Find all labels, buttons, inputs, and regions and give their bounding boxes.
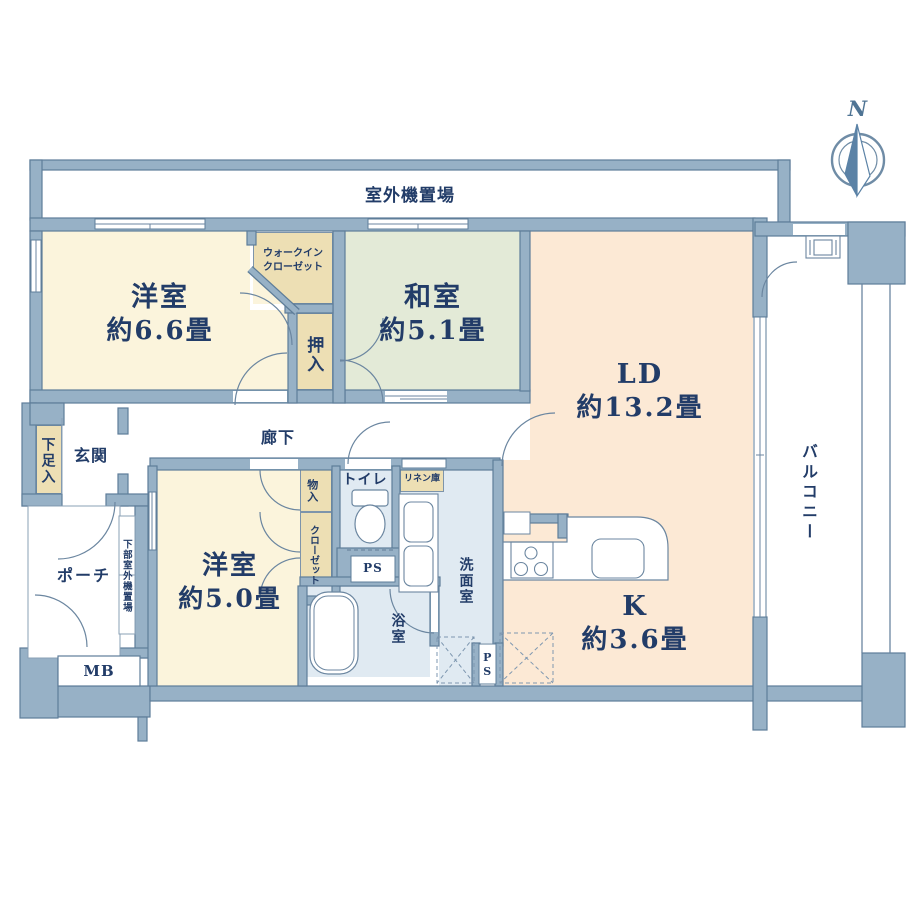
kitchen-label: K 約3.6畳 (555, 590, 715, 656)
pipe-space2-label: PS (480, 647, 494, 683)
kitchen-name: K (555, 590, 715, 624)
oshiire-label: 押入 (302, 318, 323, 392)
western2-name: 洋室 (140, 550, 320, 583)
toilet-label: トイレ (336, 472, 394, 490)
western2-area: 約5.0畳 (140, 583, 320, 614)
ld-area: 約13.2畳 (545, 392, 735, 425)
corridor-label: 廊下 (246, 428, 310, 448)
floor-plan: 室外機置場 洋室 約6.6畳 ウォークイン クローゼット 押入 和室 約5.1畳… (0, 0, 920, 920)
ld-name: LD (545, 358, 735, 392)
wic-label: ウォークイン クローゼット (251, 247, 335, 274)
labels: 室外機置場 洋室 約6.6畳 ウォークイン クローゼット 押入 和室 約5.1畳… (0, 0, 920, 920)
storage-label: 物入 (305, 472, 319, 510)
entrance-label: 玄関 (64, 446, 118, 466)
ld-label: LD 約13.2畳 (545, 358, 735, 424)
outdoor-unit-label: 室外機置場 (300, 186, 520, 207)
western2-label: 洋室 約5.0畳 (140, 550, 320, 614)
shoe-cabinet-label: 下足入 (38, 430, 56, 492)
bathroom-label: 浴室 (388, 604, 406, 654)
japanese-name: 和室 (353, 281, 513, 315)
pipe-space1-label: PS (351, 561, 395, 576)
kitchen-area: 約3.6畳 (555, 624, 715, 657)
western1-area: 約6.6畳 (60, 315, 260, 348)
japanese-area: 約5.1畳 (353, 315, 513, 348)
porch-label: ポーチ (48, 566, 120, 586)
wic-line1: ウォークイン (251, 247, 335, 261)
japanese-label: 和室 約5.1畳 (353, 281, 513, 347)
closet-label: クローゼット (306, 515, 319, 595)
linen-label: リネン庫 (400, 474, 444, 485)
lower-outdoor-unit-label: 下部室外機置場 (120, 522, 132, 630)
balcony-label: バルコニー (798, 428, 818, 558)
compass-north-label: N (845, 96, 871, 122)
meter-box-label: MB (70, 662, 128, 681)
western1-label: 洋室 約6.6畳 (60, 281, 260, 347)
washroom-label: 洗面室 (456, 536, 474, 626)
western1-name: 洋室 (60, 281, 260, 315)
wic-line2: クローゼット (251, 261, 335, 275)
